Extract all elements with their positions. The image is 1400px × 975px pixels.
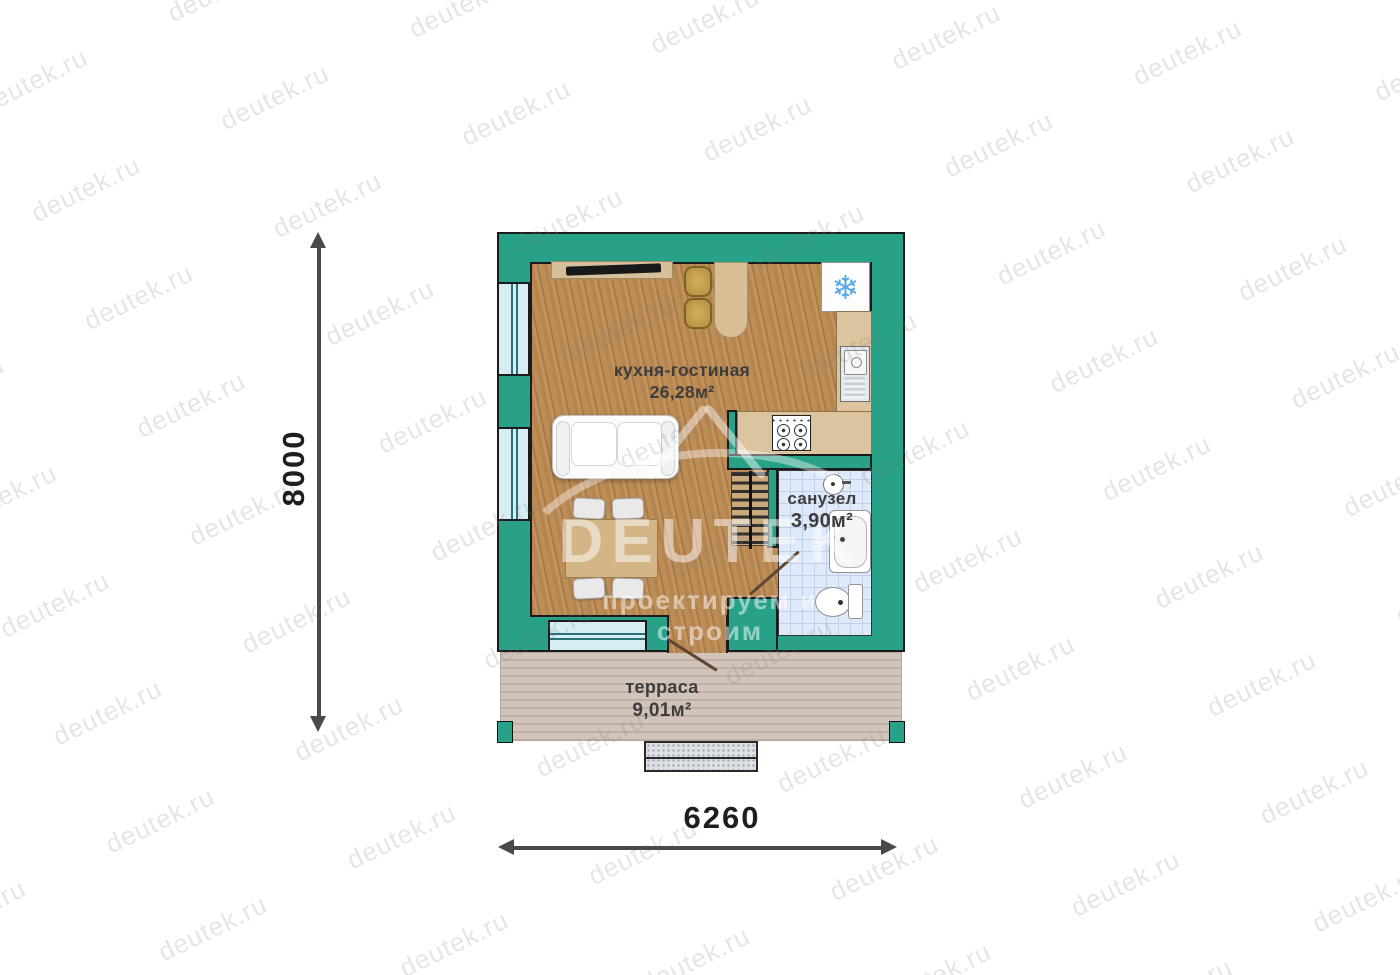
site-watermark: deutek.ru [0, 704, 39, 904]
site-watermark: deutek.ru [1361, 76, 1400, 276]
gas-stove [772, 415, 811, 451]
site-watermark: deutek.ru [952, 675, 1193, 875]
snowflake-icon: ❄ [832, 268, 860, 307]
site-watermark: deutek.ru [1299, 907, 1400, 975]
site-watermark: deutek.ru [1119, 60, 1360, 260]
bar-stool [684, 298, 712, 329]
site-watermark: deutek.ru [1172, 168, 1400, 368]
kitchen-sink [840, 346, 870, 402]
site-watermark: deutek.ru [0, 612, 228, 812]
site-watermark: deutek.ru [92, 828, 333, 975]
room-area: 3,90м² [772, 509, 872, 534]
room-area: 9,01м² [607, 699, 717, 723]
site-watermark: deutek.ru [584, 0, 825, 120]
site-watermark: deutek.ru [1067, 0, 1308, 152]
fridge: ❄ [821, 262, 870, 312]
site-watermark: deutek.ru [281, 736, 522, 936]
site-watermark: deutek.ru [0, 812, 92, 975]
burner [777, 424, 790, 437]
site-watermark: deutek.ru [900, 568, 1141, 768]
sink-drainboard [844, 377, 865, 399]
bar-counter [714, 262, 748, 338]
site-watermark: deutek.ru [259, 212, 500, 412]
site-watermark: deutek.ru [39, 720, 280, 920]
site-watermark: deutek.ru [333, 844, 574, 975]
site-watermark: deutek.ru [0, 89, 206, 289]
window-left-top [497, 282, 530, 376]
arrow-left-icon [498, 839, 514, 855]
burner [777, 438, 790, 451]
site-watermark: deutek.ru [1057, 891, 1298, 975]
site-watermark: deutek.ru [1036, 368, 1277, 568]
site-watermark: deutek.ru [816, 875, 1057, 975]
width-dimension-line [512, 846, 883, 850]
deck-post-right [889, 721, 905, 743]
sink-drain [851, 357, 862, 368]
site-watermark: deutek.ru [206, 105, 447, 305]
site-watermark: deutek.ru [0, 397, 123, 597]
site-watermark: deutek.ru [1246, 799, 1400, 975]
room-area: 26,28м² [597, 382, 767, 404]
site-watermark: deutek.ru [1141, 583, 1382, 783]
site-watermark: deutek.ru [983, 260, 1224, 460]
site-watermark: deutek.ru [1014, 0, 1255, 44]
site-watermark: deutek.ru [931, 152, 1172, 352]
arrow-up-icon [310, 232, 326, 248]
site-watermark: deutek.ru [1330, 491, 1400, 691]
arrow-down-icon [310, 716, 326, 732]
site-watermark: deutek.ru [1088, 476, 1329, 676]
site-watermark: deutek.ru [386, 952, 627, 975]
site-watermark: deutek.ru [627, 967, 868, 975]
arrow-right-icon [881, 839, 897, 855]
burner [794, 424, 807, 437]
site-watermark: deutek.ru [1224, 276, 1400, 476]
sink-basin [844, 350, 867, 375]
burner [794, 438, 807, 451]
bathroom-label: санузел 3,90м² [772, 488, 872, 534]
site-watermark: deutek.ru [1382, 599, 1400, 799]
terrace-label: терраса 9,01м² [607, 676, 717, 722]
site-watermark: deutek.ru [0, 504, 176, 704]
width-dimension-label: 6260 [662, 800, 782, 836]
room-name: санузел [772, 488, 872, 509]
site-watermark: deutek.ru [773, 0, 1014, 28]
site-watermark: deutek.ru [395, 13, 636, 213]
floor-plan-canvas: ❄ deutek.rudeutek.rudeutek.rud [0, 0, 1400, 975]
height-dimension-label: 8000 [254, 418, 334, 518]
site-watermark: deutek.ru [176, 520, 417, 720]
sofa-arm [556, 421, 570, 476]
site-watermark: deutek.ru [522, 752, 763, 952]
site-watermark: deutek.ru [878, 44, 1119, 244]
site-watermark: deutek.ru [1277, 384, 1400, 584]
site-watermark: deutek.ru [0, 0, 154, 181]
site-watermark: deutek.ru [637, 28, 878, 228]
site-watermark: deutek.ru [18, 197, 259, 397]
site-watermark: deutek.ru [1308, 0, 1400, 168]
sofa-cushion [571, 422, 617, 466]
step-divider [646, 757, 756, 759]
kitchen-living-label: кухня-гостиная 26,28м² [597, 360, 767, 404]
site-watermark: deutek.ru [154, 0, 395, 197]
site-watermark: deutek.ru [0, 920, 145, 975]
site-watermark: deutek.ru [1194, 691, 1400, 891]
room-name: кухня-гостиная [597, 360, 767, 382]
site-watermark: deutek.ru [763, 768, 1004, 968]
site-watermark: deutek.ru [0, 289, 70, 489]
site-watermark: deutek.ru [101, 0, 342, 89]
site-watermark: deutek.ru [0, 181, 18, 381]
site-watermark: deutek.ru [1255, 0, 1400, 60]
site-watermark: deutek.ru [228, 628, 469, 828]
deck-post-left [497, 721, 513, 743]
bar-stool [684, 266, 712, 297]
window-left-bottom [497, 427, 530, 521]
site-watermark: deutek.ru [343, 0, 584, 105]
site-watermark: deutek.ru [575, 860, 816, 975]
brand-tagline: проектируем и строим [545, 585, 875, 647]
site-watermark: deutek.ru [825, 0, 1066, 136]
site-watermark: deutek.ru [531, 0, 772, 13]
site-watermark: deutek.ru [0, 0, 101, 73]
site-watermark: deutek.ru [145, 936, 386, 975]
site-watermark: deutek.ru [1005, 783, 1246, 975]
entry-steps [644, 741, 758, 772]
room-name: терраса [607, 676, 717, 699]
